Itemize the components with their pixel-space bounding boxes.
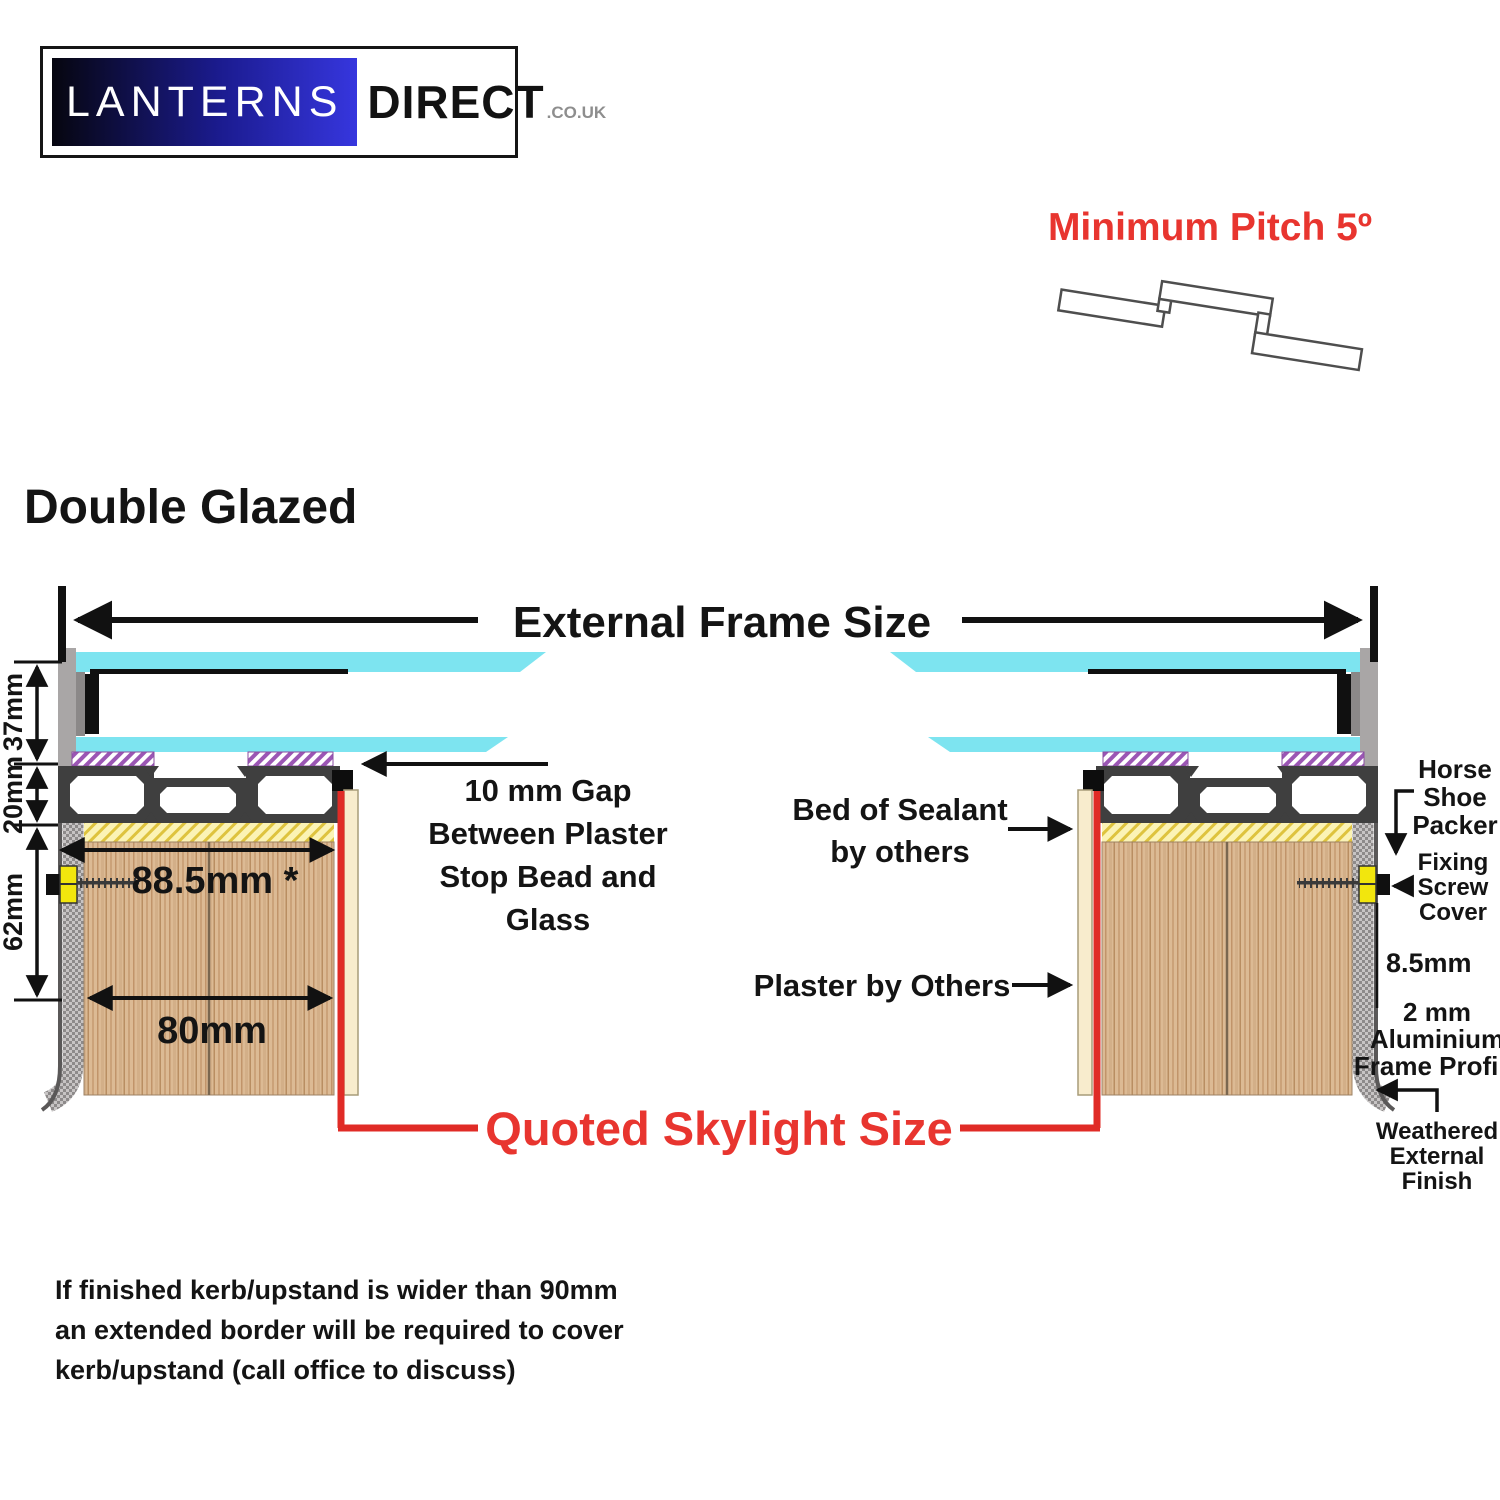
logo-lanterns-badge: LANTERNS (52, 58, 357, 146)
pitch-bar-left (1058, 290, 1165, 327)
left-glass-gap-line (90, 669, 348, 674)
external-frame-size-label: External Frame Size (513, 598, 931, 647)
cross-section-diagram: External Frame Size 37mm 20mm 62mm 88.5m… (0, 540, 1500, 1300)
footnote: If finished kerb/upstand is wider than 9… (55, 1270, 624, 1390)
right-glass-spacer (1337, 674, 1351, 734)
svg-text:Fixing: Fixing (1418, 849, 1489, 876)
horseshoe-packer-label: Horse Shoe Packer (1412, 754, 1497, 840)
right-cross-section (890, 648, 1394, 1110)
pitch-bar-middle (1159, 281, 1272, 316)
svg-text:Stop Bead and: Stop Bead and (439, 859, 656, 894)
svg-text:External: External (1390, 1143, 1485, 1170)
footnote-line-3: kerb/upstand (call office to discuss) (55, 1350, 624, 1390)
svg-text:Aluminium: Aluminium (1370, 1024, 1500, 1054)
footnote-line-1: If finished kerb/upstand is wider than 9… (55, 1270, 624, 1310)
logo-brand-primary: LANTERNS (66, 78, 343, 127)
section-title: Double Glazed (24, 480, 357, 535)
svg-text:Finish: Finish (1402, 1168, 1473, 1195)
left-aluminium-profile (58, 766, 340, 823)
right-frame-gray (1360, 648, 1378, 766)
svg-text:10 mm Gap: 10 mm Gap (464, 773, 631, 808)
svg-text:Weathered: Weathered (1376, 1118, 1498, 1145)
plaster-label: Plaster by Others (754, 968, 1011, 1003)
dim-37mm-label: 37mm (0, 673, 28, 751)
right-plaster-board (1078, 790, 1092, 1095)
left-glass-spacer (85, 674, 99, 734)
logo-brand-secondary: DIRECT (367, 75, 544, 129)
logo: LANTERNS DIRECT .CO.UK (40, 46, 518, 158)
logo-right: DIRECT .CO.UK (367, 75, 606, 129)
svg-text:Between Plaster: Between Plaster (428, 816, 668, 851)
sealant-label: Bed of Sealant by others (792, 792, 1007, 869)
svg-text:Cover: Cover (1419, 899, 1487, 926)
logo-brand-suffix: .CO.UK (547, 103, 607, 123)
gap-label: 10 mm Gap Between Plaster Stop Bead and … (428, 773, 668, 937)
left-frame-skin (42, 823, 60, 1110)
minimum-pitch-label: Minimum Pitch 5º (1000, 206, 1420, 250)
svg-text:Bed of Sealant: Bed of Sealant (792, 792, 1007, 827)
svg-text:Packer: Packer (1412, 810, 1497, 840)
footnote-line-2: an extended border will be required to c… (55, 1310, 624, 1350)
pitch-bar-right (1252, 332, 1362, 370)
pitch-sketch (1030, 262, 1390, 402)
left-gasket-2 (248, 752, 333, 766)
left-gasket-1 (72, 752, 154, 766)
page: LANTERNS DIRECT .CO.UK Minimum Pitch 5º … (0, 0, 1500, 1500)
svg-text:Frame Profile: Frame Profile (1354, 1051, 1500, 1081)
right-gasket-1 (1103, 752, 1188, 766)
left-plaster-board (344, 790, 358, 1095)
left-frame-shadow (76, 670, 85, 736)
left-frame-gray (58, 648, 76, 766)
right-frame-shadow (1351, 670, 1360, 736)
dim-20mm-label: 20mm (0, 756, 28, 834)
dim-62mm-label: 62mm (0, 873, 28, 951)
dim-80mm-label: 80mm (157, 1010, 267, 1052)
svg-text:Horse: Horse (1418, 754, 1492, 784)
right-plaster-stop-bead (1083, 770, 1104, 791)
svg-text:Screw: Screw (1418, 874, 1489, 901)
right-glass-bottom (928, 737, 1360, 752)
weathered-finish-label: Weathered External Finish (1376, 1118, 1498, 1195)
quoted-skylight-size-label: Quoted Skylight Size (485, 1102, 952, 1155)
svg-text:2 mm: 2 mm (1403, 997, 1471, 1027)
dim-88-5mm-label: 88.5mm * (132, 860, 299, 902)
svg-text:Shoe: Shoe (1423, 782, 1487, 812)
svg-text:by others: by others (830, 834, 970, 869)
right-glass-gap-line (1088, 669, 1346, 674)
dim-8-5mm-label: 8.5mm (1386, 948, 1472, 978)
left-plaster-stop-bead (332, 770, 353, 791)
right-sealant-bed (1102, 823, 1352, 842)
fixing-screw-cover-label: Fixing Screw Cover (1418, 849, 1489, 926)
right-gasket-2 (1282, 752, 1364, 766)
svg-text:Glass: Glass (506, 902, 590, 937)
left-sealant-bed (84, 823, 334, 842)
left-glass-bottom (76, 737, 508, 752)
right-aluminium-profile (1096, 766, 1378, 823)
